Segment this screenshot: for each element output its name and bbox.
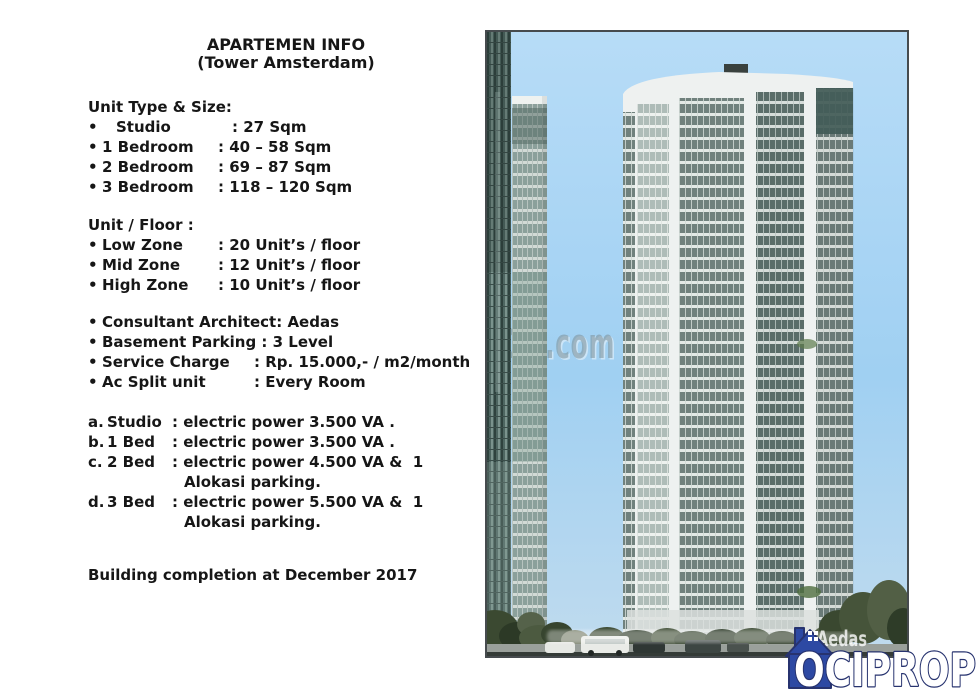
bullet-icon: • [88,352,102,372]
main-tower [623,64,854,644]
item-letter: c. [88,452,107,472]
spec-value: : Rp. 15.000,- / m2/month [254,352,470,372]
spec-value: : 20 Unit’s / floor [218,235,360,255]
bullet-icon: • [88,275,102,295]
flyer-page: APARTEMEN INFO (Tower Amsterdam) Unit Ty… [0,0,980,692]
spec-value: : electric power 4.500 VA & 1 Alokasi pa… [172,452,423,492]
page-subtitle: (Tower Amsterdam) [88,54,484,72]
section-unit-floor: Unit / Floor : • Low Zone : 20 Unit’s / … [88,215,484,295]
page-title: APARTEMEN INFO [88,36,484,54]
spec-row: d. 3 Bed : electric power 5.500 VA & 1 A… [88,492,484,532]
spec-row: • Service Charge : Rp. 15.000,- / m2/mon… [88,352,484,372]
spec-row: • High Zone : 10 Unit’s / floor [88,275,484,295]
spec-value: : electric power 3.500 VA . [172,412,395,432]
section-facilities: • Consultant Architect: Aedas • Basement… [88,312,484,392]
bullet-icon: • [88,372,102,392]
bullet-icon: • [88,235,102,255]
spec-label: Basement Parking : 3 Level [102,332,333,352]
ociprop-logo: OCIPROP [780,620,980,692]
building-rendering: 123.com 123.com [485,30,909,658]
item-letter: b. [88,432,107,452]
spec-row: • Low Zone : 20 Unit’s / floor [88,235,484,255]
bullet-icon: • [88,157,102,177]
item-letter: d. [88,492,107,512]
logo-text: OCIPROP [794,643,976,692]
spec-label: Low Zone [102,235,218,255]
spec-label: High Zone [102,275,218,295]
completion-note: Building completion at December 2017 [88,565,484,585]
spec-row: • 3 Bedroom : 118 – 120 Sqm [88,177,484,197]
spec-label: 2 Bedroom [102,157,218,177]
spec-label: 1 Bedroom [102,137,218,157]
section-unit-type: Unit Type & Size: • Studio : 27 Sqm • 1 … [88,97,484,197]
section-electric: a. Studio : electric power 3.500 VA . b.… [88,412,484,532]
bullet-icon: • [88,177,102,197]
spec-value: : Every Room [254,372,366,392]
spec-label: 2 Bed [107,452,172,472]
section-heading: Unit Type & Size: [88,97,484,117]
spec-row: a. Studio : electric power 3.500 VA . [88,412,484,432]
spec-row: • Studio : 27 Sqm [88,117,484,137]
spec-row: • Basement Parking : 3 Level [88,332,484,352]
spec-label: 3 Bed [107,492,172,512]
bullet-icon: • [88,117,102,137]
spec-label: Ac Split unit [102,372,254,392]
spec-value: : 40 – 58 Sqm [218,137,331,157]
spec-value: : 69 – 87 Sqm [218,157,331,177]
spec-row: • 2 Bedroom : 69 – 87 Sqm [88,157,484,177]
spec-value: : 27 Sqm [232,117,307,137]
spec-label: Studio [102,117,232,137]
left-gray-tower [512,96,547,642]
spec-value: : 118 – 120 Sqm [218,177,352,197]
spec-row: b. 1 Bed : electric power 3.500 VA . [88,432,484,452]
item-letter: a. [88,412,107,432]
spec-row: c. 2 Bed : electric power 4.500 VA & 1 A… [88,452,484,492]
spec-row: • Consultant Architect: Aedas [88,312,484,332]
bullet-icon: • [88,312,102,332]
spec-label: Studio [107,412,172,432]
spec-row: • Mid Zone : 12 Unit’s / floor [88,255,484,275]
spec-label: 3 Bedroom [102,177,218,197]
building-illustration: 123.com 123.com [487,32,907,656]
spec-label: Mid Zone [102,255,218,275]
spec-label: Service Charge [102,352,254,372]
spec-value: : 12 Unit’s / floor [218,255,360,275]
left-glass-tower [487,32,511,638]
info-panel: APARTEMEN INFO (Tower Amsterdam) Unit Ty… [88,36,484,585]
spec-label: 1 Bed [107,432,172,452]
spec-row: • 1 Bedroom : 40 – 58 Sqm [88,137,484,157]
section-heading: Unit / Floor : [88,215,484,235]
bullet-icon: • [88,332,102,352]
bullet-icon: • [88,137,102,157]
title-block: APARTEMEN INFO (Tower Amsterdam) [88,36,484,72]
spec-value: : electric power 5.500 VA & 1 Alokasi pa… [172,492,423,532]
bullet-icon: • [88,255,102,275]
spec-row: • Ac Split unit : Every Room [88,372,484,392]
spec-value: : electric power 3.500 VA . [172,432,395,452]
spec-value: : 10 Unit’s / floor [218,275,360,295]
spec-label: Consultant Architect: Aedas [102,312,339,332]
